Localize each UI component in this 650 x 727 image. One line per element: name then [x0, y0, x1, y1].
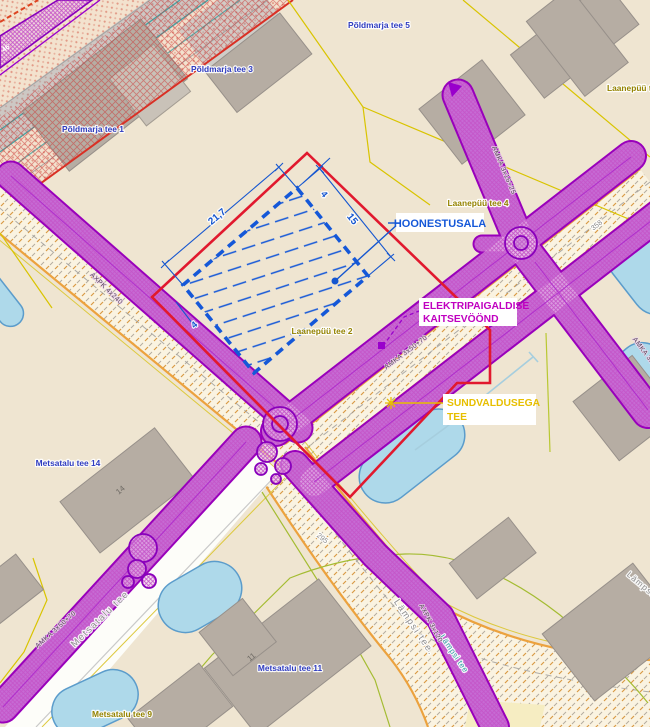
address-metsatalu11: Metsatalu tee 11 [258, 663, 323, 673]
address-poldmarja3: Põldmarja tee 3 [191, 64, 253, 74]
callout-sundvaldus-line2: TEE [447, 412, 467, 423]
callout-sundvaldus-line1: SUNDVALDUSEGA [447, 398, 541, 409]
address-poldmarja5: Põldmarja tee 5 [348, 20, 410, 30]
address-metsatalu9: Metsatalu tee 9 [92, 709, 152, 719]
callout-kaitsevoond-line2: KAITSEVÖÖND [423, 312, 499, 325]
address-laanepuu2: Laanepüü tee 2 [292, 326, 353, 336]
callout-hoonestusala-text: HOONESTUSALA [394, 218, 486, 230]
address-laanepuu4: Laanepüü tee 4 [448, 198, 509, 208]
address-poldmarja1: Põldmarja tee 1 [62, 124, 124, 134]
address-metsatalu14: Metsatalu tee 14 [36, 458, 101, 468]
leader-square [378, 342, 385, 349]
callout-kaitsevoond-line1: ELEKTRIPAIGALDISE [423, 301, 529, 312]
plan-map: 46 [0, 0, 650, 727]
map-canvas[interactable]: 46 [0, 0, 650, 727]
address-laanepuu-edge: Laanepüü tee [607, 83, 650, 93]
